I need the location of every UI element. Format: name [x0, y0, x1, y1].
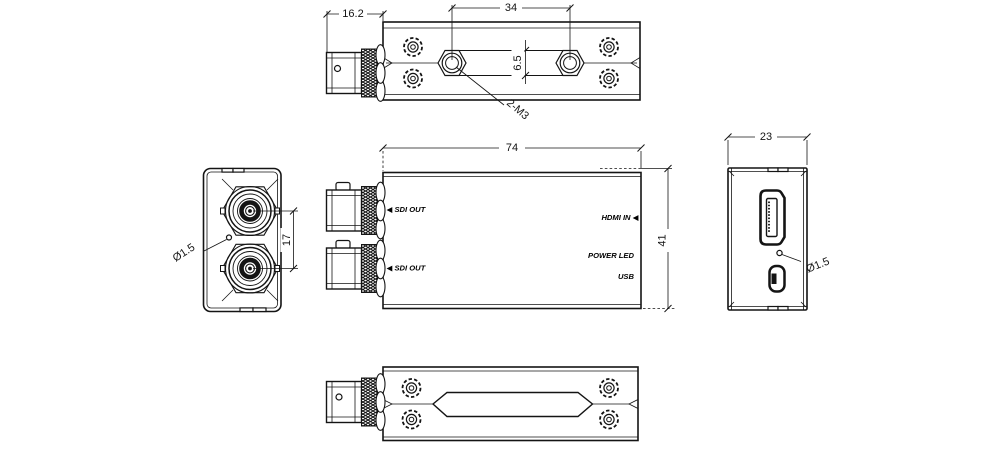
- dim-16-2: 16.2: [324, 8, 387, 52]
- dim-text: 16.2: [342, 8, 363, 20]
- bnc-connector-side: [327, 45, 386, 102]
- bottom-view: [327, 367, 639, 441]
- screw-hole: [404, 70, 422, 88]
- label-power-led: POWER LED: [588, 251, 635, 260]
- label-sdi-out-bottom: ◀ SDI OUT: [387, 264, 427, 273]
- technical-drawing: 16.2 34 6.5 2-M3: [0, 0, 1000, 449]
- dim-23: 23: [725, 131, 811, 165]
- bayonet-pin-hole: [336, 394, 342, 400]
- dim-text: 74: [506, 142, 518, 154]
- front-view-body: [383, 173, 641, 309]
- led-hole: [777, 250, 782, 255]
- bnc-connector-side: [327, 240, 386, 297]
- dim-text: 34: [505, 2, 517, 14]
- dim-text: 23: [760, 131, 772, 143]
- hdmi-port: [761, 191, 785, 245]
- label-usb: USB: [618, 272, 635, 281]
- thread-callout-text: 2-M3: [504, 97, 531, 122]
- hole-callout-text: Ø1.5: [171, 241, 198, 264]
- micro-usb-port: [770, 266, 785, 292]
- bnc-connector-side: [327, 374, 386, 431]
- left-view: Ø1.5 17: [171, 169, 298, 312]
- led-hole: [227, 235, 232, 240]
- bnc-connector-side: [327, 182, 386, 239]
- screw-hole: [600, 379, 618, 397]
- hole-callout-text: Ø1.5: [805, 255, 832, 275]
- right-view: Ø1.5 23: [725, 131, 832, 310]
- label-sdi-out-top: ◀ SDI OUT: [387, 205, 427, 214]
- screw-hole: [403, 411, 421, 429]
- front-view: ◀ SDI OUT ◀ SDI OUT HDMI IN ◀ POWER LED …: [327, 142, 677, 312]
- callout-hole-diameter: Ø1.5: [171, 240, 227, 265]
- dim-34: 34: [449, 2, 574, 60]
- bayonet-pin-hole: [335, 66, 341, 72]
- dim-text: 17: [281, 234, 293, 246]
- screw-hole: [600, 411, 618, 429]
- top-view: 16.2 34 6.5 2-M3: [324, 2, 641, 122]
- dim-41: 41: [600, 165, 676, 312]
- dim-text: 6.5: [512, 55, 524, 70]
- screw-hole: [403, 379, 421, 397]
- dim-74: 74: [380, 142, 645, 171]
- screw-hole: [600, 38, 618, 56]
- dim-6-5: 6.5: [512, 40, 530, 84]
- seam-notch-right: [629, 400, 638, 409]
- label-hdmi-in: HDMI IN ◀: [601, 213, 638, 222]
- screw-hole: [600, 70, 618, 88]
- dim-text: 41: [657, 234, 669, 246]
- screw-hole: [404, 38, 422, 56]
- bottom-slot: [433, 393, 593, 417]
